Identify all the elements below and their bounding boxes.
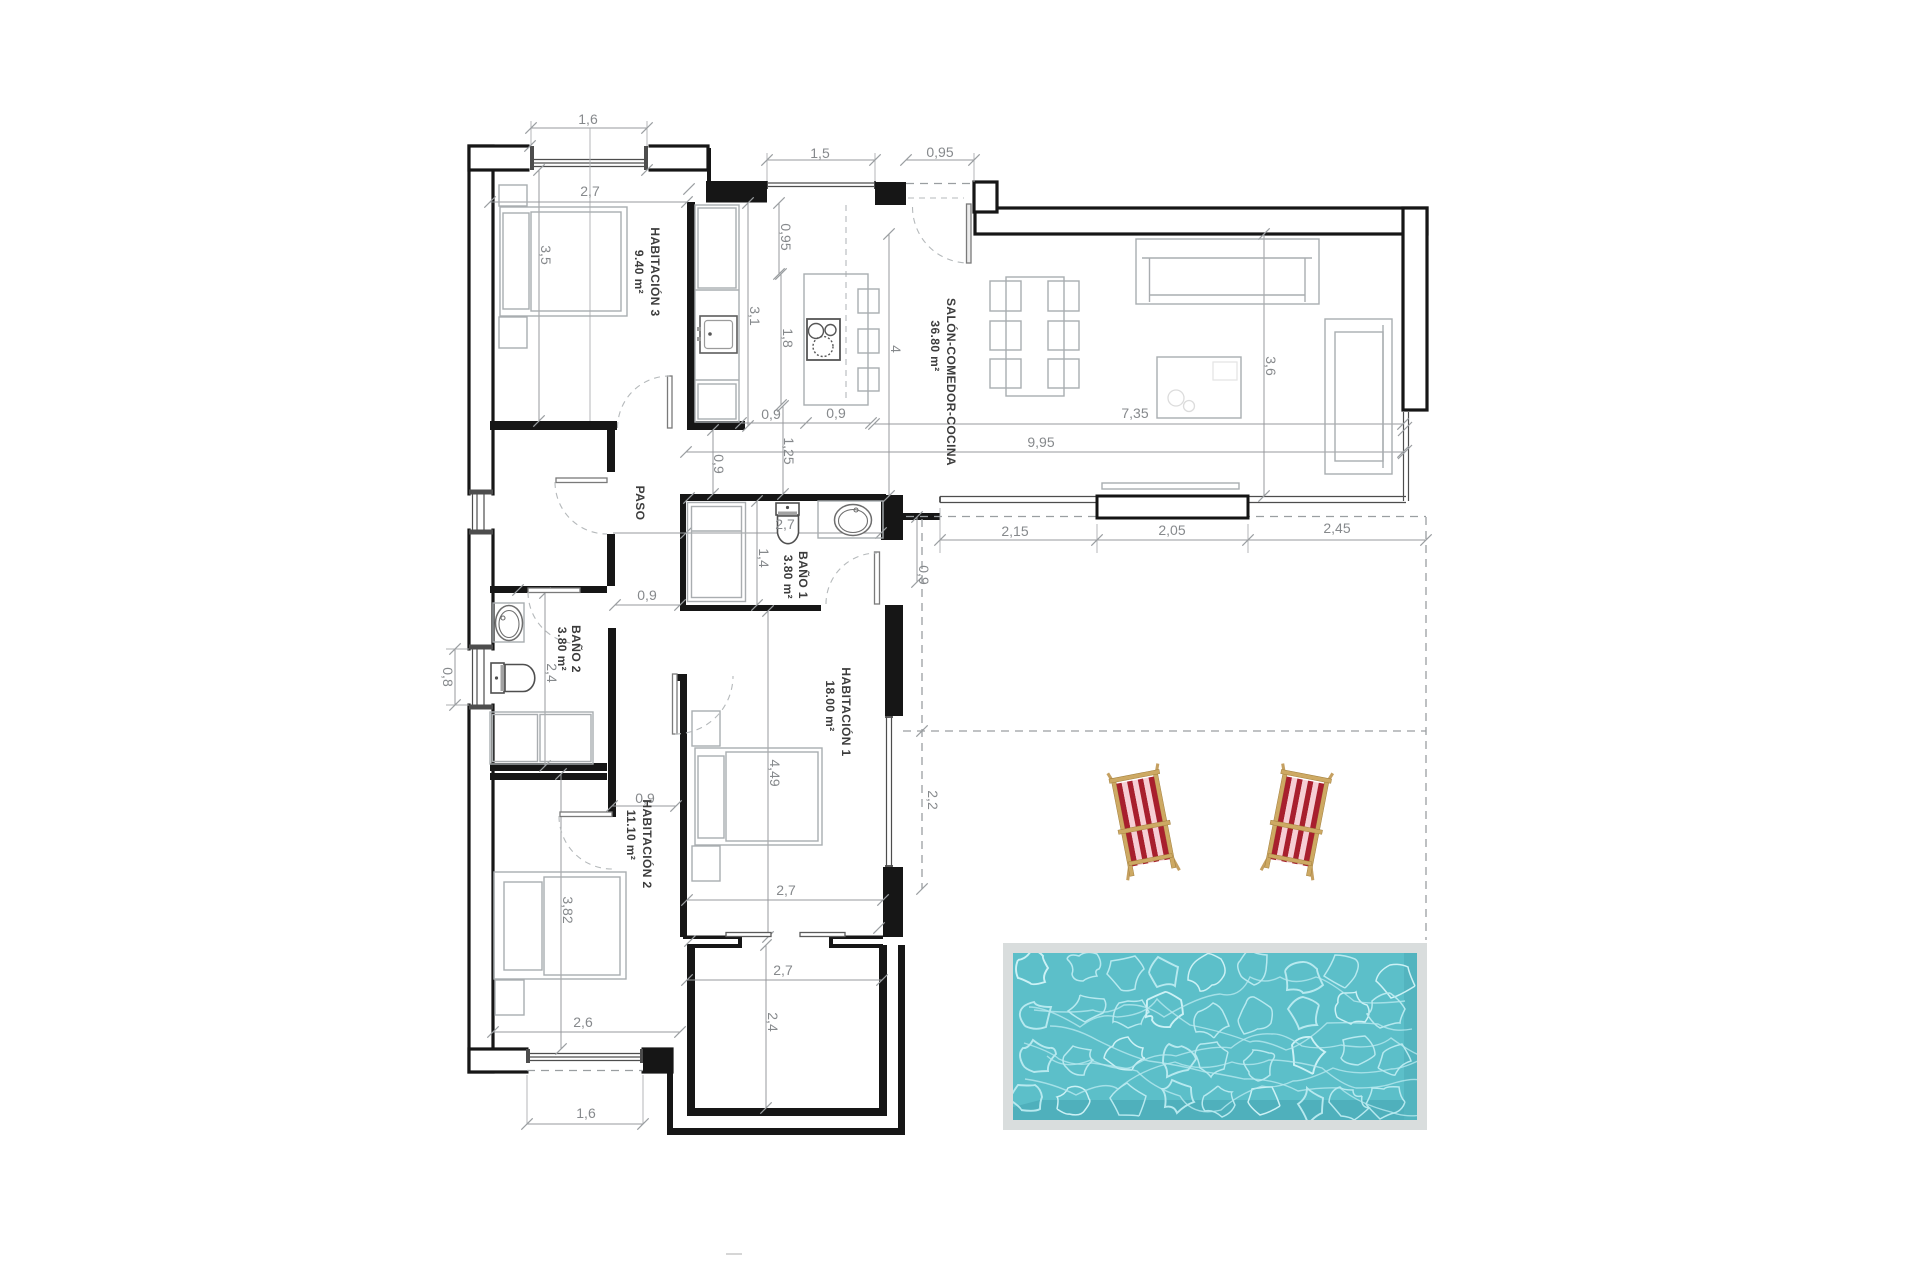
svg-text:0,9: 0,9	[826, 405, 846, 421]
svg-text:0,9: 0,9	[637, 587, 657, 603]
svg-text:2,2: 2,2	[925, 790, 941, 810]
svg-text:HABITACIÓN 2: HABITACIÓN 2	[640, 799, 655, 888]
svg-text:9.40 m²: 9.40 m²	[632, 250, 646, 294]
svg-text:0,95: 0,95	[778, 223, 794, 250]
svg-text:1,8: 1,8	[780, 328, 796, 348]
svg-text:1,6: 1,6	[576, 1105, 596, 1121]
svg-text:3,5: 3,5	[538, 245, 554, 265]
svg-text:HABITACIÓN 3: HABITACIÓN 3	[648, 227, 663, 316]
svg-text:1,4: 1,4	[756, 548, 772, 568]
svg-text:SALÓN-COMEDOR-COCINA: SALÓN-COMEDOR-COCINA	[944, 298, 959, 466]
svg-text:36.80 m²: 36.80 m²	[928, 320, 942, 371]
svg-text:2,7: 2,7	[775, 516, 795, 532]
svg-text:4: 4	[888, 345, 904, 353]
svg-text:2,05: 2,05	[1158, 522, 1185, 538]
svg-text:1,25: 1,25	[781, 437, 797, 464]
svg-text:0,95: 0,95	[926, 144, 953, 160]
svg-text:0,9: 0,9	[916, 565, 932, 585]
svg-text:0,8: 0,8	[440, 667, 456, 687]
svg-text:7,35: 7,35	[1121, 405, 1148, 421]
svg-text:3,82: 3,82	[560, 896, 576, 923]
svg-text:2,15: 2,15	[1001, 523, 1028, 539]
svg-text:PASO: PASO	[633, 486, 647, 521]
svg-text:2,7: 2,7	[580, 183, 600, 199]
svg-text:2,45: 2,45	[1323, 520, 1350, 536]
svg-text:9,95: 9,95	[1027, 434, 1054, 450]
svg-text:11.10 m²: 11.10 m²	[624, 810, 638, 861]
svg-text:3,1: 3,1	[747, 306, 763, 326]
svg-text:4,49: 4,49	[767, 759, 783, 786]
svg-text:BAÑO 1: BAÑO 1	[796, 551, 811, 599]
svg-text:HABITACIÓN 1: HABITACIÓN 1	[839, 667, 854, 756]
svg-text:1,6: 1,6	[578, 111, 598, 127]
svg-text:2,4: 2,4	[765, 1012, 781, 1032]
svg-text:3,6: 3,6	[1263, 356, 1279, 376]
svg-text:18.00 m²: 18.00 m²	[823, 680, 837, 731]
svg-text:3.80 m²: 3.80 m²	[555, 627, 569, 671]
svg-text:2,7: 2,7	[773, 962, 793, 978]
svg-text:2,6: 2,6	[573, 1014, 593, 1030]
svg-text:0,9: 0,9	[761, 406, 781, 422]
svg-text:0,9: 0,9	[711, 454, 727, 474]
svg-text:3.80 m²: 3.80 m²	[781, 555, 795, 599]
svg-text:1,5: 1,5	[810, 145, 830, 161]
svg-text:BAÑO 2: BAÑO 2	[569, 625, 584, 673]
svg-text:2,7: 2,7	[776, 882, 796, 898]
